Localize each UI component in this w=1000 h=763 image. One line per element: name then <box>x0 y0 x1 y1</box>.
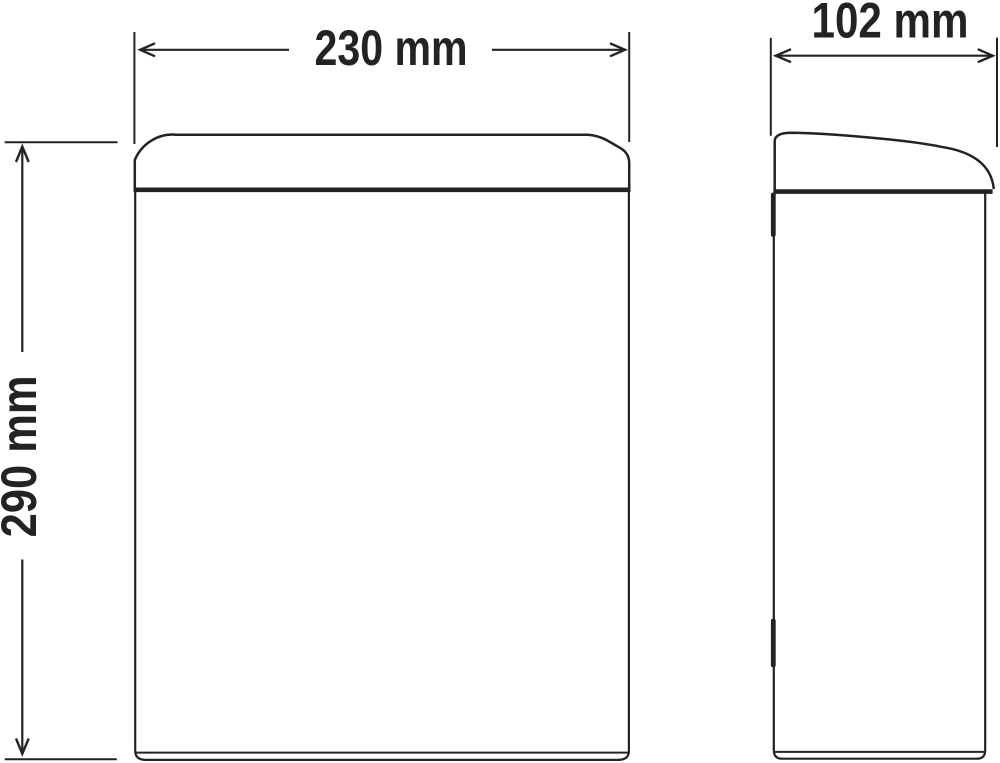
svg-text:102 mm: 102 mm <box>812 0 969 49</box>
svg-text:290 mm: 290 mm <box>0 375 47 537</box>
svg-text:230 mm: 230 mm <box>315 20 468 76</box>
